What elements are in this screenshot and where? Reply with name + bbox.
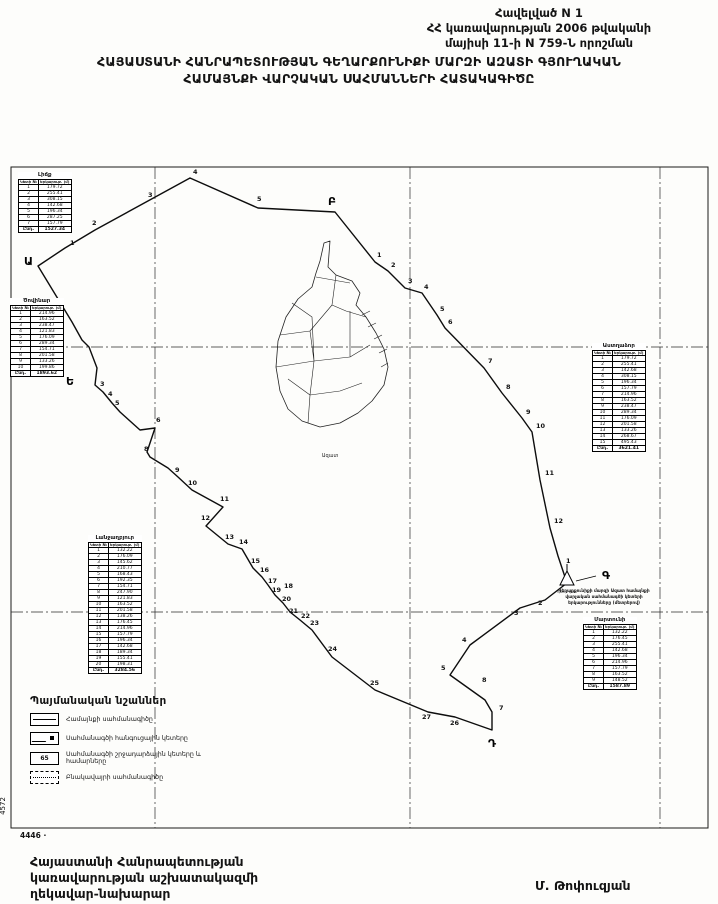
boundary-point-number: 11 (220, 495, 230, 503)
settlement-name-label: Ազատ (322, 453, 339, 459)
legend-symbol-node-icon (30, 732, 59, 745)
total-value: 3284.56 (109, 668, 141, 674)
boundary-node-letter: Ե (66, 375, 74, 388)
boundary-point-number: 1 (70, 239, 75, 247)
segment-table-right: ԱստղաձորԿետի №Երկարութ. (մ)1179.722255.4… (592, 343, 646, 452)
boundary-point-number: 1 (377, 251, 382, 259)
total-value: 3621.41 (613, 446, 645, 452)
col-header-length: Երկարութ. (մ) (109, 543, 141, 548)
col-header-length: Երկարութ. (մ) (604, 625, 636, 630)
boundary-point-number: 9 (526, 408, 531, 416)
boundary-point-number: 5 (441, 664, 446, 672)
signing-title: Հայաստանի Հանրապետության կառավարության ա… (30, 854, 258, 902)
boundary-segment-table: Կետի №Երկարութ. (մ)1179.722255.413142.68… (592, 350, 646, 452)
appendix-header: Հավելված N 1 ՀՀ կառավարության 2006 թվակա… (374, 6, 704, 51)
table-total-row: Ընդ.3284.56 (89, 668, 142, 674)
col-header-length: Երկարութ. (մ) (613, 351, 645, 356)
table-title: Աստղաձոր (592, 343, 646, 349)
boundary-point-number: 3 (514, 609, 519, 617)
boundary-node-letter: Ա (24, 255, 33, 268)
legend-item: Բնակավայրի սահմանագիծը (30, 771, 216, 784)
boundary-point-number: 22 (301, 612, 310, 620)
legend-item-label: Բնակավայրի սահմանագիծը (66, 774, 163, 781)
table-title: Ծովինար (10, 298, 64, 304)
boundary-segment-table: Կետի №Երկարութ. (մ)1214.962163.523238.47… (10, 305, 64, 377)
boundary-point-number: 5 (115, 399, 120, 407)
cadastral-map: գեոդ. կետ Ազատ 1234512345678910111212345… (10, 165, 710, 830)
boundary-point-number: 12 (554, 517, 563, 525)
boundary-point-number: 24 (328, 645, 338, 653)
total-value: 1527.34 (39, 227, 71, 233)
document-title: ՀԱՅԱՍՏԱՆԻ ՀԱՆՐԱՊԵՏՈՒԹՅԱՆ ԳԵՂԱՐՔՈՒՆԻՔԻ ՄԱ… (0, 54, 718, 88)
table-total-row: Ընդ.3621.41 (593, 446, 646, 452)
legend-item: Սահմանագծի հանգուցային կետերը (30, 732, 216, 745)
boundary-point-number: 12 (201, 514, 210, 522)
decree-number: մայիսի 11-ի N 759-Ն որոշման (374, 36, 704, 51)
note-line-1: Գեղարքունիքի մարզի Ազատ համայնքի (546, 589, 662, 595)
boundary-point-number: 27 (422, 713, 431, 721)
col-header-point: Կետի № (89, 543, 109, 548)
segment-table-bottomcenter: ԼանջաղբյուրԿետի №Երկարութ. (մ)1132.22217… (88, 535, 142, 674)
table-title: Լանջաղբյուր (88, 535, 142, 541)
signature-name: Մ. Թոփուզյան (535, 878, 631, 893)
boundary-point-number: 8 (506, 383, 511, 391)
total-label: Ընդ. (89, 668, 109, 674)
boundary-point-number: 4 (424, 283, 429, 291)
boundary-point-number: 8 (144, 445, 149, 453)
boundary-point-number: 4 (193, 168, 198, 176)
col-header-length: Երկարութ. (մ) (39, 180, 71, 185)
boundary-point-number: 15 (251, 557, 261, 565)
boundary-point-number: 18 (284, 582, 294, 590)
total-value: 1587.89 (604, 684, 636, 690)
boundary-point-number: 7 (488, 357, 493, 365)
col-header-point: Կետի № (584, 625, 604, 630)
boundary-point-number: 14 (239, 538, 249, 546)
total-value: 1893.62 (31, 371, 63, 377)
map-note: Գեղարքունիքի մարզի Ազատ համայնքի վարչակա… (546, 589, 662, 606)
boundary-point-number: 3 (100, 380, 105, 388)
total-label: Ընդ. (584, 684, 604, 690)
signing-line-3: ղեկավար-նախարար (30, 886, 258, 902)
boundary-node-letter: Դ (488, 737, 497, 750)
boundary-point-number: 10 (536, 422, 546, 430)
legend-item-label: Համայնքի սահմանագիծը (66, 716, 153, 723)
boundary-point-number: 19 (272, 586, 282, 594)
settlement-plan (276, 241, 388, 427)
note-line-3: երկարությունները (մետրերով) (546, 601, 662, 607)
col-header-length: Երկարութ. (մ) (31, 306, 63, 311)
boundary-node-letter: Գ (602, 569, 611, 582)
boundary-point-number: 21 (289, 607, 299, 615)
boundary-point-number: 3 (148, 191, 153, 199)
boundary-point-number: 5 (440, 305, 445, 313)
table-title: Մարտունի (583, 617, 637, 623)
legend: Պայմանական նշաններ Համայնքի սահմանագիծըՍ… (30, 695, 216, 790)
boundary-point-number: 17 (268, 577, 277, 585)
total-label: Ընդ. (19, 227, 39, 233)
boundary-point-number: 4 (462, 636, 467, 644)
boundary-point-number: 26 (450, 719, 460, 727)
table-total-row: Ընդ.1527.34 (19, 227, 72, 233)
boundary-point-number: 4 (108, 390, 113, 398)
legend-symbol-dashed-icon (30, 771, 59, 784)
col-header-point: Կետի № (593, 351, 613, 356)
table-total-row: Ընդ.1893.62 (11, 371, 64, 377)
legend-symbol-line-icon (30, 713, 59, 726)
table-title: Լիճք (18, 172, 72, 178)
boundary-segment-table: Կետի №Երկարութ. (մ)1132.222176.093145.62… (88, 542, 142, 674)
boundary-point-number: 5 (257, 195, 262, 203)
boundary-point-number: 11 (545, 469, 555, 477)
boundary-point-number: 2 (391, 261, 396, 269)
legend-item: 65Սահմանագծի շրջադարձային կետերը և համար… (30, 751, 216, 765)
col-header-point: Կետի № (11, 306, 31, 311)
legend-item: Համայնքի սահմանագիծը (30, 713, 216, 726)
title-line-2: ՀԱՄԱՅՆՔԻ ՎԱՐՉԱԿԱՆ ՍԱՀՄԱՆՆԵՐԻ ՀԱՏԱԿԱԳԻԾԸ (0, 71, 718, 88)
geodetic-point-icon (560, 564, 596, 585)
title-line-1: ՀԱՅԱՍՏԱՆԻ ՀԱՆՐԱՊԵՏՈՒԹՅԱՆ ԳԵՂԱՐՔՈՒՆԻՔԻ ՄԱ… (0, 54, 718, 71)
boundary-node-letter: Բ (328, 195, 336, 208)
boundary-segment-table: Կետի №Երկարութ. (մ)1179.722255.413308.15… (18, 179, 72, 233)
boundary-point-number: 9 (175, 466, 180, 474)
col-header-point: Կետի № (19, 180, 39, 185)
legend-item-label: Սահմանագծի հանգուցային կետերը (66, 735, 188, 742)
total-label: Ընդ. (593, 446, 613, 452)
table-total-row: Ընդ.1587.89 (584, 684, 637, 690)
total-label: Ընդ. (11, 371, 31, 377)
signing-line-2: կառավարության աշխատակազմի (30, 870, 258, 886)
boundary-point-number: 25 (370, 679, 380, 687)
boundary-point-number: 6 (448, 318, 453, 326)
legend-symbol-number-icon: 65 (30, 752, 59, 765)
boundary-point-number: 20 (282, 595, 292, 603)
sheet-number-bottom: 4446 · (20, 831, 46, 840)
boundary-point-number: 7 (499, 704, 504, 712)
segment-table-left: ԾովինարԿետի №Երկարութ. (մ)1214.962163.52… (10, 298, 64, 377)
boundary-point-number: 8 (482, 676, 487, 684)
segment-table-topleft: ԼիճքԿետի №Երկարութ. (մ)1179.722255.41330… (18, 172, 72, 233)
legend-item-label: Սահմանագծի շրջադարձային կետերը և համարնե… (66, 751, 216, 765)
boundary-segment-table: Կետի №Երկարութ. (մ)1132.222176.453255.41… (583, 624, 637, 690)
legend-items: Համայնքի սահմանագիծըՍահմանագծի հանգուցայ… (30, 713, 216, 784)
decree-year: ՀՀ կառավարության 2006 թվականի (374, 21, 704, 36)
boundary-point-number: 1 (566, 557, 571, 565)
boundary-point-number: 2 (538, 599, 543, 607)
appendix-number: Հավելված N 1 (374, 6, 704, 21)
boundary-point-number: 2 (92, 219, 97, 227)
boundary-point-number: 6 (156, 416, 161, 424)
boundary-point-number: 3 (408, 277, 413, 285)
sheet-number-left: 4572 (0, 797, 7, 815)
boundary-point-number: 10 (188, 479, 198, 487)
segment-table-bottomright: ՄարտունիԿետի №Երկարութ. (մ)1132.222176.4… (583, 617, 637, 690)
boundary-point-number: 16 (260, 566, 270, 574)
signing-line-1: Հայաստանի Հանրապետության (30, 854, 258, 870)
boundary-point-number: 13 (225, 533, 234, 541)
boundary-point-number: 23 (310, 619, 319, 627)
legend-title: Պայմանական նշաններ (30, 695, 216, 707)
